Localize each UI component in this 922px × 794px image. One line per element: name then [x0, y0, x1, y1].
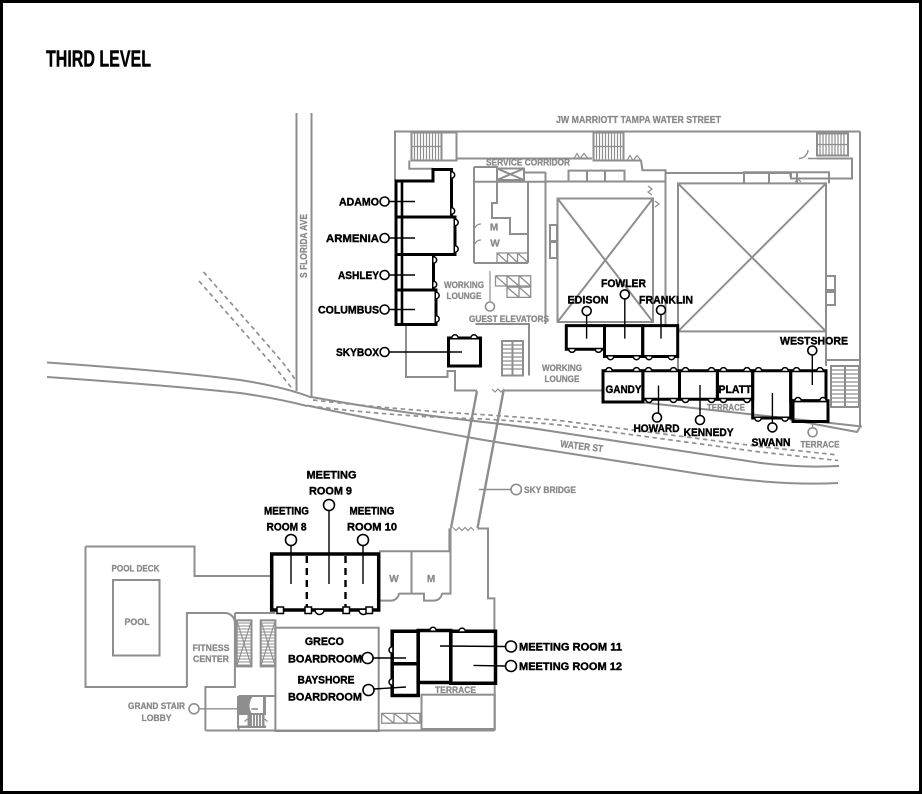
svg-text:BAYSHORE: BAYSHORE	[298, 675, 355, 687]
svg-text:PLATT: PLATT	[719, 384, 752, 396]
svg-text:CENTER: CENTER	[193, 654, 229, 665]
svg-text:THIRD LEVEL: THIRD LEVEL	[46, 46, 151, 72]
svg-text:GANDY: GANDY	[606, 384, 643, 396]
svg-text:LOUNGE: LOUNGE	[447, 291, 482, 302]
svg-text:FOWLER: FOWLER	[601, 278, 646, 290]
svg-text:FRANKLIN: FRANKLIN	[639, 295, 693, 307]
svg-text:MEETING ROOM 12: MEETING ROOM 12	[519, 661, 622, 673]
svg-text:W: W	[389, 574, 399, 585]
svg-text:W: W	[490, 239, 500, 250]
svg-text:ASHLEY: ASHLEY	[338, 270, 380, 282]
svg-text:MEETING ROOM 11: MEETING ROOM 11	[519, 642, 622, 654]
svg-text:EDISON: EDISON	[568, 295, 609, 307]
svg-text:ROOM 10: ROOM 10	[347, 522, 397, 534]
svg-text:LOUNGE: LOUNGE	[545, 374, 580, 385]
svg-text:GUEST ELEVATORS: GUEST ELEVATORS	[469, 314, 549, 325]
svg-text:GRECO: GRECO	[305, 636, 344, 648]
svg-text:BOARDROOM: BOARDROOM	[288, 654, 362, 666]
svg-text:GRAND STAIR: GRAND STAIR	[128, 701, 185, 712]
svg-text:M: M	[427, 574, 435, 585]
svg-text:SKYBOX: SKYBOX	[336, 347, 380, 359]
svg-text:KENNEDY: KENNEDY	[684, 427, 735, 439]
svg-text:MEETING: MEETING	[307, 470, 357, 482]
svg-text:MEETING: MEETING	[350, 506, 395, 518]
svg-text:WORKING: WORKING	[444, 280, 484, 291]
svg-text:ADAMO: ADAMO	[339, 197, 379, 209]
svg-text:WESTSHORE: WESTSHORE	[780, 336, 848, 348]
svg-text:BOARDROOM: BOARDROOM	[288, 692, 362, 704]
svg-text:POOL: POOL	[125, 617, 150, 628]
svg-text:HOWARD: HOWARD	[634, 423, 680, 435]
svg-text:SWANN: SWANN	[752, 437, 791, 449]
svg-text:TERRACE: TERRACE	[707, 403, 745, 414]
svg-text:COLUMBUS: COLUMBUS	[318, 305, 379, 317]
svg-text:POOL DECK: POOL DECK	[112, 564, 160, 575]
svg-text:JW MARRIOTT TAMPA WATER STREET: JW MARRIOTT TAMPA WATER STREET	[556, 114, 721, 126]
svg-text:LOBBY: LOBBY	[142, 713, 173, 724]
svg-text:S FLORIDA AVE: S FLORIDA AVE	[299, 214, 310, 278]
svg-text:ARMENIA: ARMENIA	[326, 233, 379, 245]
svg-text:SERVICE CORRIDOR: SERVICE CORRIDOR	[486, 158, 570, 169]
svg-text:TERRACE: TERRACE	[801, 440, 840, 451]
svg-text:M: M	[490, 223, 498, 234]
svg-text:SKY BRIDGE: SKY BRIDGE	[524, 485, 576, 496]
svg-text:ROOM 9: ROOM 9	[309, 486, 352, 498]
svg-text:ROOM 8: ROOM 8	[267, 522, 307, 534]
svg-text:MEETING: MEETING	[264, 506, 309, 518]
svg-text:FITNESS: FITNESS	[193, 643, 230, 654]
svg-text:TERRACE: TERRACE	[435, 685, 476, 696]
svg-text:WORKING: WORKING	[542, 363, 582, 374]
